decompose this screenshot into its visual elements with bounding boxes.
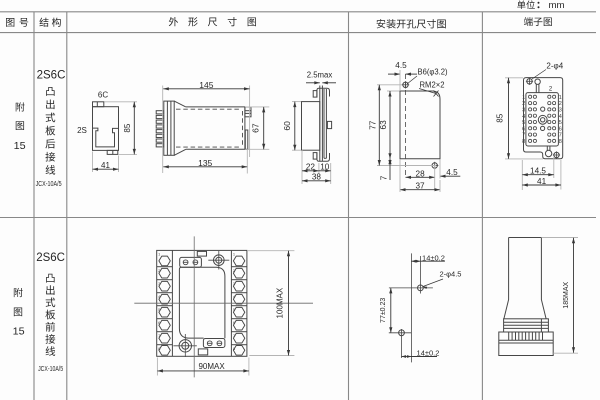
svg-text:3: 3 xyxy=(522,108,525,114)
svg-text:1: 1 xyxy=(158,252,161,257)
svg-text:2: 2 xyxy=(559,101,562,107)
svg-text:100MAX: 100MAX xyxy=(276,287,285,318)
svg-text:60: 60 xyxy=(282,121,292,131)
svg-text:1: 1 xyxy=(233,252,236,257)
svg-text:63: 63 xyxy=(379,120,388,130)
svg-text:37: 37 xyxy=(415,182,425,191)
svg-text:2S6C: 2S6C xyxy=(36,252,65,264)
svg-text:2: 2 xyxy=(549,87,553,93)
svg-text:15: 15 xyxy=(13,326,25,338)
svg-text:67: 67 xyxy=(250,123,260,133)
svg-text:2-φ4.5: 2-φ4.5 xyxy=(440,270,462,279)
svg-text:2: 2 xyxy=(522,101,525,107)
svg-text:85: 85 xyxy=(496,113,505,122)
svg-text:185MAX: 185MAX xyxy=(563,281,570,308)
svg-text:14.5: 14.5 xyxy=(530,167,546,176)
svg-text:JCX-10A/5: JCX-10A/5 xyxy=(38,366,63,373)
svg-text:41: 41 xyxy=(537,177,547,186)
svg-text:4.5: 4.5 xyxy=(446,168,458,177)
svg-text:14±0.2: 14±0.2 xyxy=(417,349,440,358)
svg-text:2.5max: 2.5max xyxy=(307,71,333,80)
svg-text:B6(φ3.2): B6(φ3.2) xyxy=(418,68,448,77)
svg-text:6C: 6C xyxy=(98,91,108,100)
svg-text:2-φ4: 2-φ4 xyxy=(546,61,563,70)
svg-text:4: 4 xyxy=(559,114,563,120)
svg-text:135: 135 xyxy=(198,158,212,168)
svg-text:38: 38 xyxy=(312,173,322,182)
svg-text:14±0.2: 14±0.2 xyxy=(422,253,445,262)
svg-text:77: 77 xyxy=(368,120,377,130)
svg-text:mm: mm xyxy=(549,0,565,11)
svg-text:28: 28 xyxy=(416,169,426,178)
svg-text:6: 6 xyxy=(559,126,562,132)
svg-text:1: 1 xyxy=(522,95,525,101)
svg-text:5: 5 xyxy=(559,120,562,126)
svg-text:2S: 2S xyxy=(77,126,87,135)
svg-text:1: 1 xyxy=(559,95,562,101)
svg-text:41: 41 xyxy=(101,161,110,170)
svg-text:85: 85 xyxy=(123,123,132,132)
svg-text:3: 3 xyxy=(559,108,562,114)
svg-text:2S6C: 2S6C xyxy=(37,69,66,81)
svg-text:8: 8 xyxy=(559,139,562,145)
svg-text:7: 7 xyxy=(559,133,562,139)
svg-text:7: 7 xyxy=(522,133,525,139)
svg-text:JCX-10A/5: JCX-10A/5 xyxy=(36,181,62,188)
svg-text:145: 145 xyxy=(199,80,213,90)
svg-text:22: 22 xyxy=(306,163,316,172)
svg-text:90MAX: 90MAX xyxy=(198,362,225,371)
svg-text:77±0.23: 77±0.23 xyxy=(380,298,387,323)
svg-text:5: 5 xyxy=(522,120,525,126)
svg-text:RM2×2: RM2×2 xyxy=(420,80,446,89)
svg-text:8: 8 xyxy=(522,139,525,145)
svg-text:7: 7 xyxy=(380,175,389,180)
svg-text:6: 6 xyxy=(522,126,525,132)
svg-text:15: 15 xyxy=(14,140,26,152)
svg-text:4.5: 4.5 xyxy=(395,61,407,70)
